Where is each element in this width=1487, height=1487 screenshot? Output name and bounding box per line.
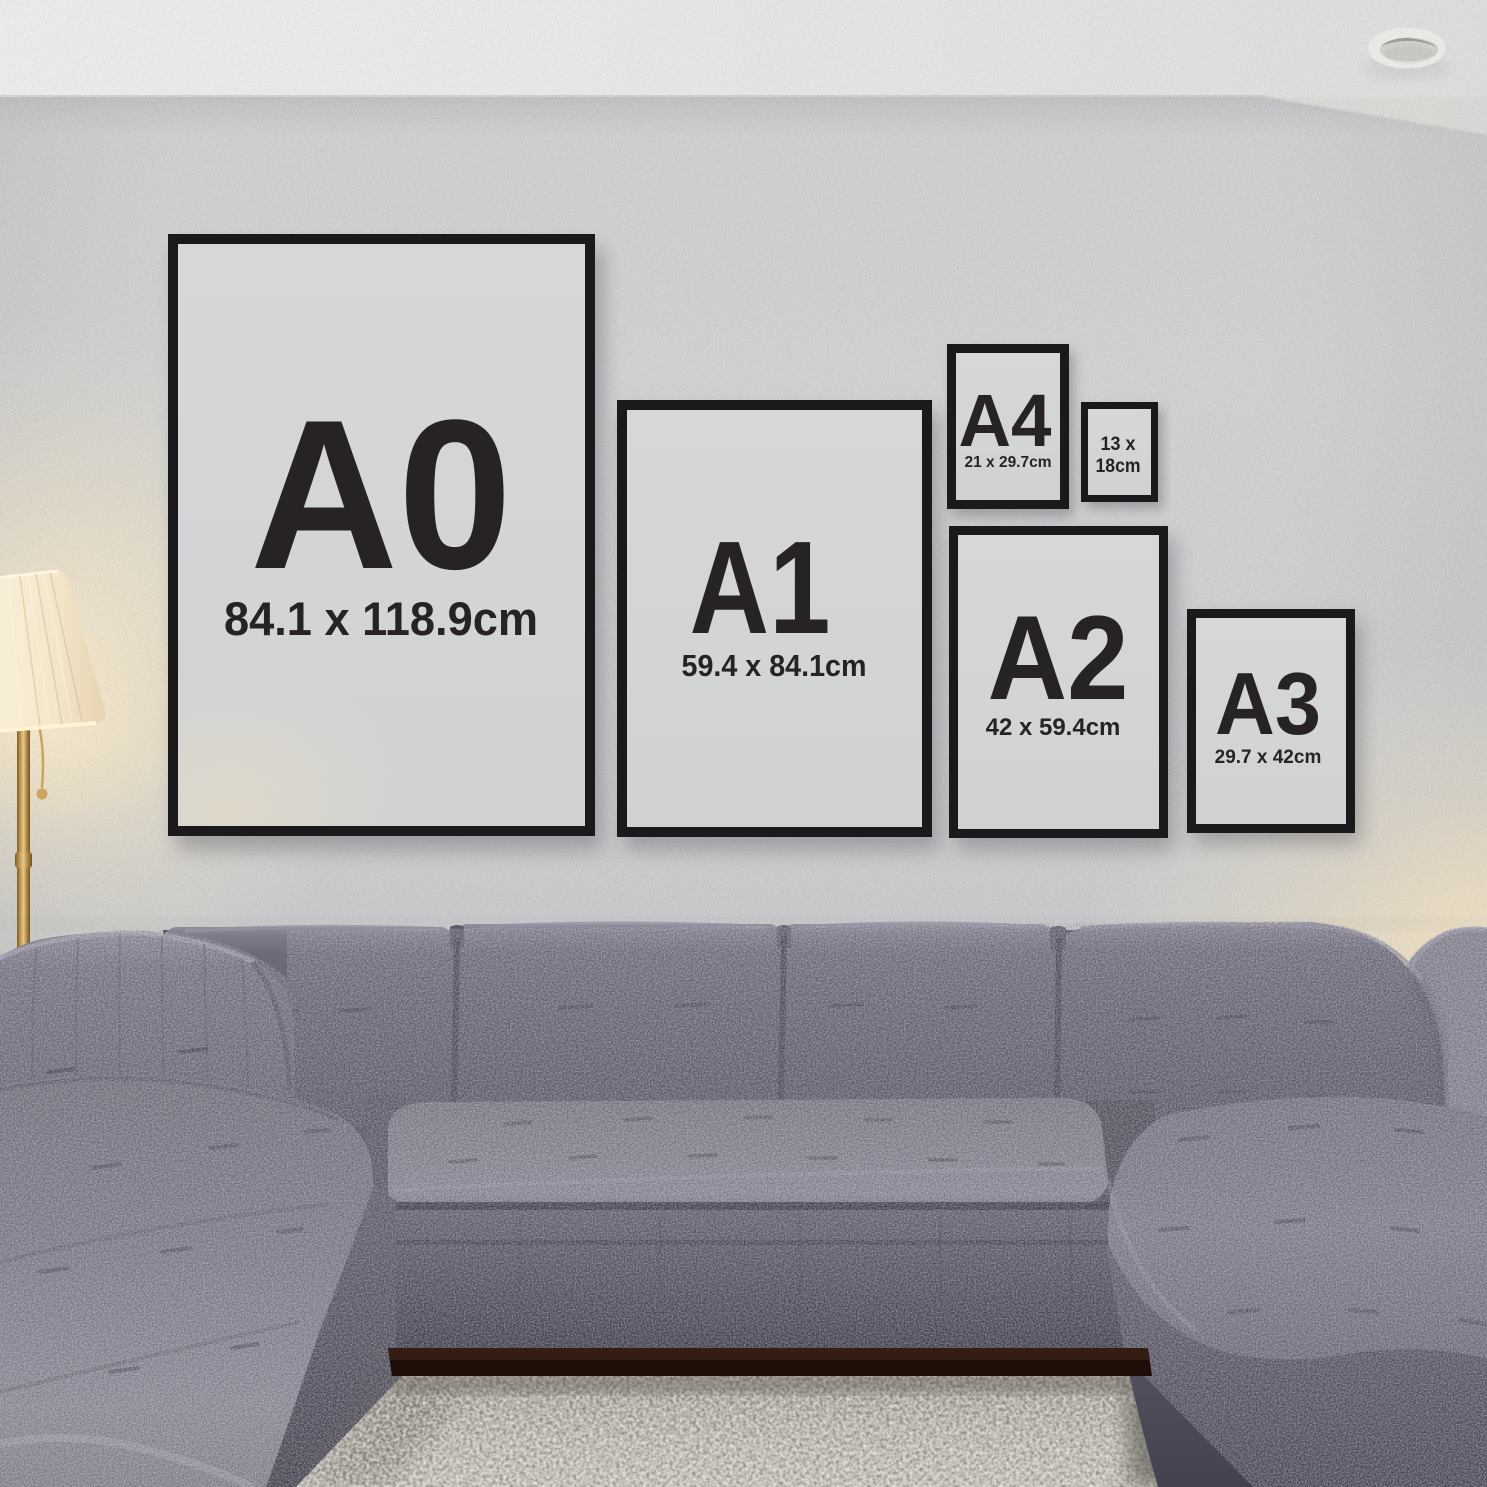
- svg-text:13 x: 13 x: [1101, 434, 1136, 455]
- svg-text:42 x 59.4cm: 42 x 59.4cm: [986, 714, 1121, 741]
- svg-text:29.7 x 42cm: 29.7 x 42cm: [1215, 747, 1322, 768]
- svg-text:A2: A2: [988, 591, 1129, 725]
- svg-text:59.4 x 84.1cm: 59.4 x 84.1cm: [682, 648, 867, 683]
- svg-text:A4: A4: [959, 379, 1052, 462]
- svg-text:A0: A0: [250, 376, 512, 614]
- svg-text:21 x 29.7cm: 21 x 29.7cm: [965, 454, 1052, 471]
- svg-text:18cm: 18cm: [1096, 456, 1141, 477]
- svg-text:84.1 x 118.9cm: 84.1 x 118.9cm: [224, 593, 538, 646]
- svg-text:A1: A1: [690, 514, 831, 661]
- svg-text:A3: A3: [1215, 654, 1321, 753]
